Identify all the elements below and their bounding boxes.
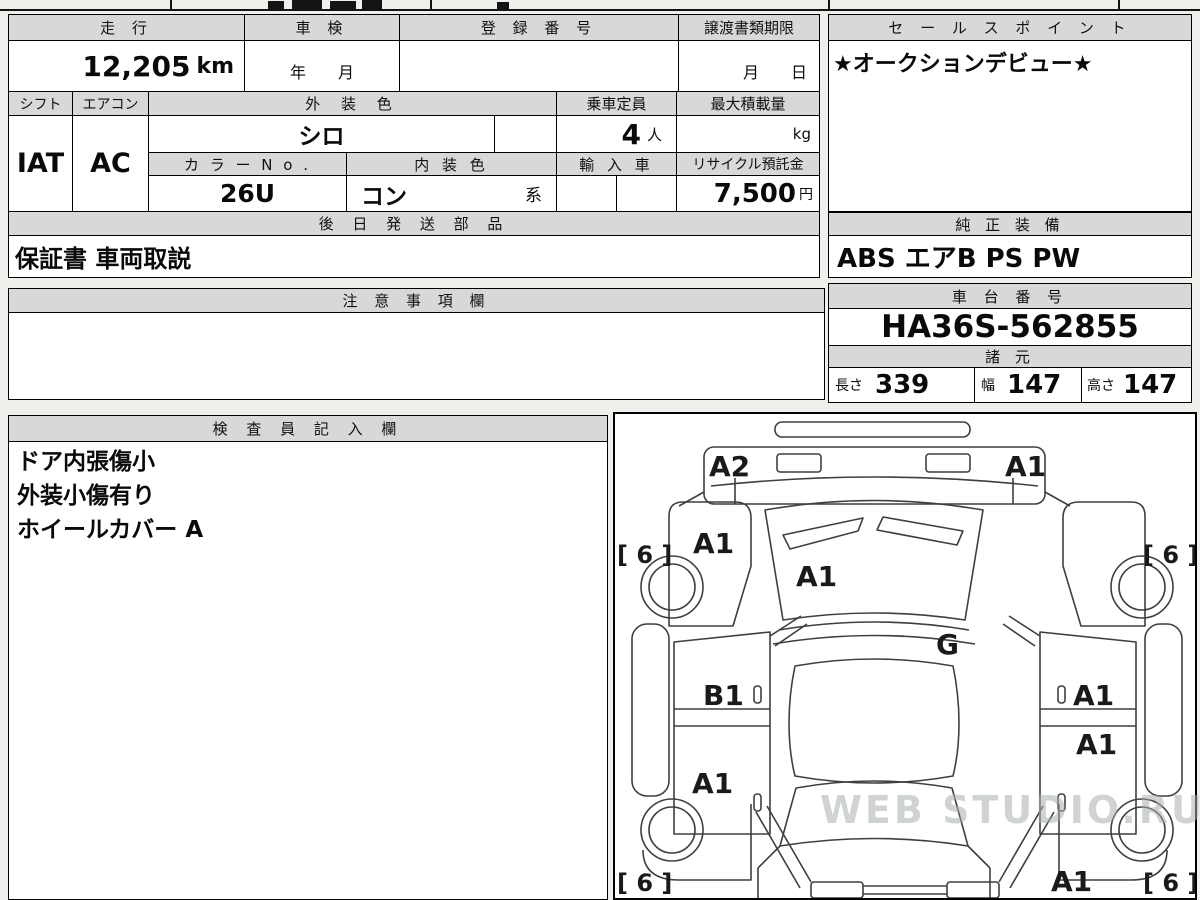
door-handle-icon: [754, 686, 761, 703]
import-car-cell-2: [616, 175, 677, 212]
aircon-value: AC: [72, 115, 149, 212]
exterior-color-value: シロ: [148, 115, 495, 153]
damage-label-left-front-door: B1: [703, 679, 744, 712]
mileage-header: 走 行: [8, 14, 245, 41]
equipment-block: 純 正 装 備 ABS エアB PS PW: [828, 212, 1192, 278]
notes-block: 注 意 事 項 欄: [8, 288, 825, 400]
inspection-header: 車 検: [244, 14, 400, 41]
max-load-unit: kg: [793, 125, 811, 143]
spec-height-cell: 高さ 147: [1081, 367, 1192, 403]
damage-label-right-rear-quarter: A1: [1051, 865, 1092, 898]
car-damage-diagram: A2 A1 [ 6 ] [ 6 ] A1 A1 G B1 A1 A1 A1 A1…: [615, 414, 1195, 898]
taillight-left-icon: [811, 882, 863, 898]
interior-color-suffix: 系: [525, 181, 542, 206]
capacity-unit: 人: [647, 124, 662, 145]
color-no-header: カ ラ ー N o .: [148, 152, 347, 176]
damage-label-right-rear-door: A1: [1076, 728, 1117, 761]
recycle-deposit-unit: 円: [799, 184, 813, 204]
spec-height-value: 147: [1123, 370, 1177, 400]
sales-point-header: セ ー ル ス ポ イ ン ト: [828, 14, 1192, 41]
damage-label-front-bumper-left: A2: [709, 450, 750, 483]
recycle-deposit-number: 7,500: [714, 179, 796, 209]
inspector-header: 検 査 員 記 入 欄: [8, 415, 608, 442]
specs-header: 諸 元: [828, 345, 1192, 368]
sales-point-block: セ ー ル ス ポ イ ン ト ★オークションデビュー★: [828, 14, 1192, 212]
notes-body: [8, 312, 825, 400]
shift-value: IAT: [8, 115, 73, 212]
equipment-value: ABS エアB PS PW: [828, 235, 1192, 278]
spec-width-label: 幅: [981, 375, 995, 395]
vehicle-info-table: 走 行 車 検 登 録 番 号 譲渡書類期限 12,205 km 年 月 月 日…: [8, 14, 820, 278]
chassis-no-value: HA36S-562855: [828, 308, 1192, 346]
import-car-header: 輸 入 車: [556, 152, 677, 176]
spec-height-label: 高さ: [1087, 375, 1115, 395]
door-handle-icon: [1058, 686, 1065, 703]
spec-length-cell: 長さ 339: [828, 367, 975, 403]
door-handle-icon: [754, 794, 761, 811]
interior-color-value: コン 系: [346, 175, 557, 212]
transfer-docs-value: 月 日: [678, 40, 820, 92]
notes-header: 注 意 事 項 欄: [8, 288, 825, 313]
tire-depth-rear-right: [ 6 ]: [1143, 869, 1195, 897]
later-parts-header: 後 日 発 送 部 品: [8, 211, 820, 236]
damage-diagram-panel: A2 A1 [ 6 ] [ 6 ] A1 A1 G B1 A1 A1 A1 A1…: [613, 412, 1197, 900]
wiper-right-icon: [877, 517, 963, 545]
headlight-left-icon: [777, 454, 821, 472]
tire-depth-rear-left: [ 6 ]: [617, 869, 672, 897]
mileage-value: 12,205 km: [8, 40, 245, 92]
cropped-header-row: [0, 0, 1200, 12]
max-load-value: kg: [676, 115, 820, 153]
recycle-deposit-value: 7,500 円: [676, 175, 820, 212]
taillight-right-icon: [947, 882, 999, 898]
interior-color-name: コン: [361, 177, 407, 211]
inspection-value: 年 月: [244, 40, 400, 92]
recycle-deposit-header: リサイクル預託金: [676, 152, 820, 176]
auction-sheet: 走 行 車 検 登 録 番 号 譲渡書類期限 12,205 km 年 月 月 日…: [0, 0, 1200, 900]
headlight-right-icon: [926, 454, 970, 472]
inspector-line: ドア内張傷小: [17, 445, 599, 479]
spec-length-value: 339: [875, 370, 929, 400]
mileage-unit: km: [196, 54, 234, 79]
capacity-number: 4: [622, 118, 641, 151]
interior-color-header: 内 装 色: [346, 152, 557, 176]
aircon-header: エアコン: [72, 91, 149, 116]
wheel-rear-left-icon: [641, 799, 703, 861]
chassis-specs-block: 車 台 番 号 HA36S-562855 諸 元 長さ 339 幅 147 高さ…: [828, 283, 1192, 403]
color-no-value: 26U: [148, 175, 347, 212]
wiper-left-icon: [783, 518, 863, 549]
spec-width-cell: 幅 147: [974, 367, 1082, 403]
import-car-cell-1: [556, 175, 617, 212]
exterior-color-header: 外 装 色: [148, 91, 557, 116]
damage-label-left-fender: A1: [693, 527, 734, 560]
damage-label-cowl: G: [936, 628, 959, 661]
later-parts-value: 保証書 車両取説: [8, 235, 820, 278]
damage-label-front-bumper-right: A1: [1005, 450, 1046, 483]
capacity-value: 4 人: [556, 115, 677, 153]
spec-width-value: 147: [1007, 370, 1061, 400]
transfer-docs-header: 譲渡書類期限: [678, 14, 820, 41]
inspector-line: ホイールカバー A: [17, 513, 599, 547]
registration-header: 登 録 番 号: [399, 14, 679, 41]
inspector-block: 検 査 員 記 入 欄 ドア内張傷小 外装小傷有り ホイールカバー A: [8, 415, 608, 900]
capacity-header: 乗車定員: [556, 91, 677, 116]
max-load-header: 最大積載量: [676, 91, 820, 116]
exterior-color-extra-cell: [494, 115, 557, 153]
wheel-rear-right-icon: [1111, 799, 1173, 861]
inspector-line: 外装小傷有り: [17, 479, 599, 513]
damage-label-right-front-door: A1: [1073, 679, 1114, 712]
equipment-header: 純 正 装 備: [828, 212, 1192, 236]
shift-header: シフト: [8, 91, 73, 116]
inspector-body: ドア内張傷小 外装小傷有り ホイールカバー A: [8, 441, 608, 900]
tire-depth-front-left: [ 6 ]: [617, 541, 672, 569]
mileage-number: 12,205: [82, 50, 190, 83]
registration-value: [399, 40, 679, 92]
damage-label-left-rear-door: A1: [692, 767, 733, 800]
tire-depth-front-right: [ 6 ]: [1143, 541, 1195, 569]
spec-length-label: 長さ: [835, 375, 863, 395]
sales-point-value: ★オークションデビュー★: [828, 40, 1192, 212]
chassis-no-header: 車 台 番 号: [828, 283, 1192, 309]
damage-label-windshield: A1: [796, 560, 837, 593]
